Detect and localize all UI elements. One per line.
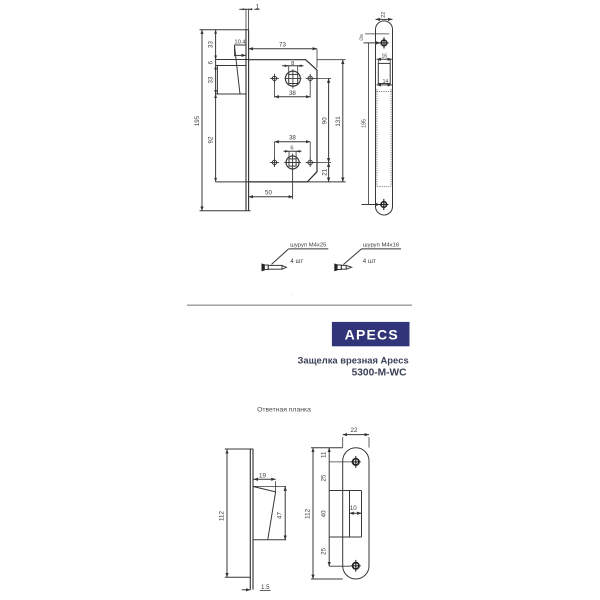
svg-text:.: . bbox=[292, 291, 293, 297]
svg-text:112: 112 bbox=[218, 511, 225, 521]
svg-text:33: 33 bbox=[207, 76, 214, 83]
svg-text:73: 73 bbox=[279, 42, 286, 49]
svg-text:19: 19 bbox=[259, 472, 266, 479]
svg-text:90: 90 bbox=[321, 117, 328, 124]
svg-text:1: 1 bbox=[256, 3, 260, 10]
svg-text:∅6: ∅6 bbox=[359, 34, 365, 41]
svg-text:22: 22 bbox=[351, 427, 358, 434]
svg-text:131: 131 bbox=[335, 116, 342, 127]
svg-text:10: 10 bbox=[350, 505, 357, 512]
svg-text:14: 14 bbox=[383, 79, 389, 85]
svg-text:4 шт: 4 шт bbox=[363, 258, 376, 265]
svg-text:195: 195 bbox=[194, 115, 201, 126]
svg-text:92: 92 bbox=[207, 136, 214, 143]
svg-text:6: 6 bbox=[207, 60, 214, 64]
svg-text:50: 50 bbox=[265, 189, 272, 196]
svg-text:25: 25 bbox=[321, 474, 328, 481]
svg-text:1.5: 1.5 bbox=[261, 584, 270, 591]
svg-text:APECS: APECS bbox=[345, 327, 399, 343]
svg-text:22: 22 bbox=[381, 12, 387, 18]
svg-text:38: 38 bbox=[289, 135, 296, 142]
svg-text:195: 195 bbox=[362, 119, 368, 128]
svg-text:8: 8 bbox=[291, 61, 294, 67]
svg-text:25: 25 bbox=[321, 547, 328, 554]
svg-text:33: 33 bbox=[207, 41, 214, 48]
svg-text:16: 16 bbox=[382, 53, 388, 59]
svg-text:21: 21 bbox=[322, 168, 329, 175]
svg-text:4 шт: 4 шт bbox=[290, 258, 303, 265]
svg-text:Ответная планка: Ответная планка bbox=[257, 406, 311, 413]
svg-text:Защелка врезная Apecs: Защелка врезная Apecs bbox=[298, 355, 409, 366]
svg-text:38: 38 bbox=[289, 90, 296, 97]
svg-text:шуруп M4х25: шуруп M4х25 bbox=[290, 242, 327, 248]
svg-text:47: 47 bbox=[277, 512, 284, 519]
svg-text:40: 40 bbox=[321, 510, 328, 517]
svg-text:11: 11 bbox=[321, 451, 328, 458]
svg-text:шуруп M4х16: шуруп M4х16 bbox=[363, 242, 400, 248]
svg-text:6: 6 bbox=[290, 145, 293, 151]
svg-text:5300-M-WC: 5300-M-WC bbox=[352, 367, 408, 378]
svg-text:112: 112 bbox=[304, 508, 311, 518]
svg-text:10.4: 10.4 bbox=[234, 39, 246, 45]
